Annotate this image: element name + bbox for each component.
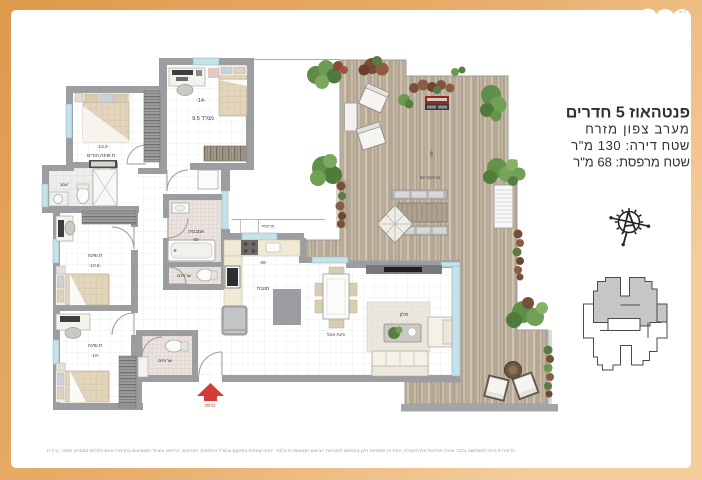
svg-text:פינת אוכל: פינת אוכל [327,332,346,337]
svg-text:-14-: -14- [197,98,206,104]
svg-text:מרפסת: מרפסת [261,224,274,229]
svg-text:-60-: -60- [192,237,200,242]
svg-text:מטבח: מטבח [257,287,269,292]
svg-text:-30-: -30- [259,260,267,265]
svg-text:ח.שינה: ח.שינה [88,253,103,259]
svg-text:ח שי: ח שי [678,9,686,14]
svg-text:ח.שינה: ח.שינה [88,343,103,349]
svg-text:אמבטיה: אמבטיה [188,229,204,234]
svg-text:שטח מרפסת: 68 מ"ר: שטח מרפסת: 68 מ"ר [573,155,690,170]
svg-text:-10-: -10- [91,353,100,358]
svg-text:פנטהאוז 5 חדרים: פנטהאוז 5 חדרים [566,105,690,122]
svg-text:ממ"ד 9.5: ממ"ד 9.5 [192,116,214,122]
svg-text:שטח דירה: 130 מ"ר: שטח דירה: 130 מ"ר [571,138,690,153]
svg-text:ח.שינה הורים: ח.שינה הורים [87,153,115,159]
svg-text:-60-: -60- [429,150,434,159]
svg-text:כניסה: כניסה [204,403,216,408]
svg-text:מערב צפון מזרח: מערב צפון מזרח [585,122,690,137]
svg-text:סלון: סלון [400,311,408,318]
svg-text:שרותים: שרותים [158,358,173,363]
svg-text:-13.2-: -13.2- [97,144,109,149]
svg-text:אמב': אמב' [60,182,69,187]
svg-text:הדמיה זו הינה להמחשה בלבד ואינ: הדמיה זו הינה להמחשה בלבד ואינה מחייבת א… [47,448,515,453]
svg-text:מרפסת 68: מרפסת 68 [420,175,440,180]
svg-text:שרותים: שרותים [177,273,192,278]
svg-text:-10.5-: -10.5- [89,263,101,268]
